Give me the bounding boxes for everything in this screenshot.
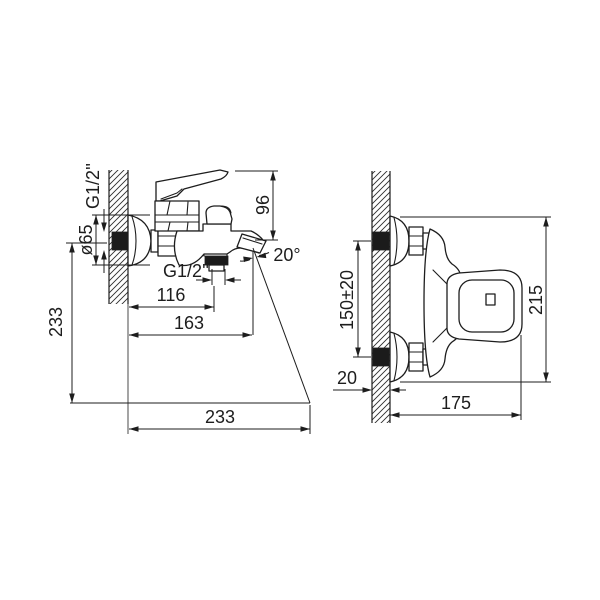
front-handle [447,270,522,342]
dim-width-116: 116 [129,285,214,312]
escutcheon-diameter-label: ø65 [76,224,96,255]
dim-width-163: 163 [129,313,252,338]
technical-drawing-page: ø65 G1/2'' 96 20° G1/2'' [0,0,600,600]
side-view-wall [109,170,128,434]
bath-mixer-dimension-drawing: ø65 G1/2'' 96 20° G1/2'' [0,0,600,600]
side-view: ø65 G1/2'' 96 20° G1/2'' [46,163,310,434]
width-116-label: 116 [157,285,186,305]
spout-angle-label: 20° [273,245,300,265]
side-escutcheon [128,215,151,266]
height-96-label: 96 [253,195,273,215]
width-163-label: 163 [174,313,204,333]
side-eccentric-union [112,232,128,250]
front-view: 150±20 20 175 215 [333,171,551,423]
dim-thread-bottom: G1/2'' [163,261,241,285]
overall-height-215-label: 215 [526,285,546,315]
side-diverter-knob [206,206,232,224]
front-escutcheons [390,216,409,382]
wall-depth-label: 20 [337,368,357,388]
dim-left-height-233: 233 [46,243,107,403]
dim-hole-spacing: 150±20 [337,241,371,357]
left-height-233-label: 233 [46,307,66,337]
front-handle-button [486,294,495,305]
hole-spacing-label: 150±20 [337,270,357,330]
side-cartridge-body [155,201,199,231]
thread-top-label: G1/2'' [83,163,103,209]
front-view-wall [372,171,390,423]
projection-175-label: 175 [441,393,471,413]
dim-bottom-width-233: 233 [129,405,310,434]
bottom-width-233-label: 233 [205,407,235,427]
side-lever-handle [156,170,228,201]
dim-height-96: 96 [235,171,278,240]
thread-bottom-label: G1/2'' [163,261,209,281]
